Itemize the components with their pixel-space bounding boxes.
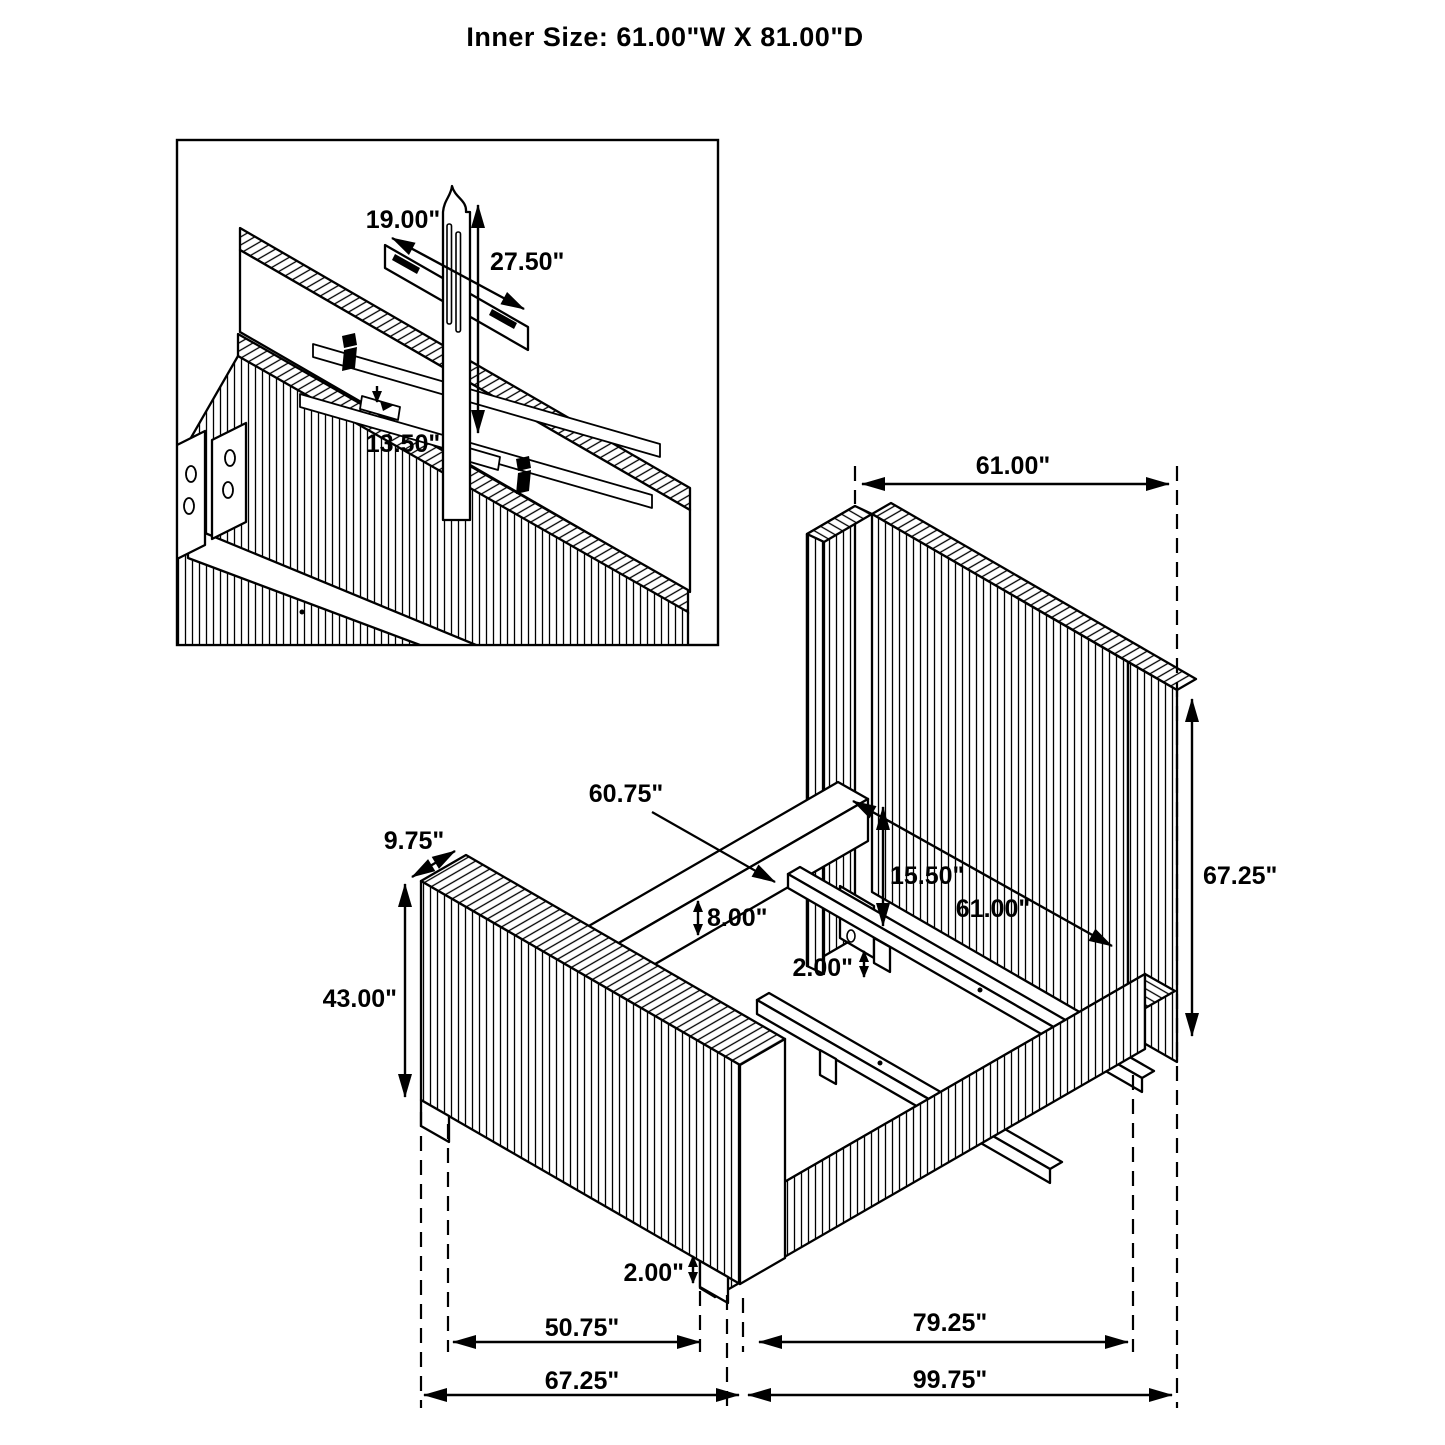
- dim-label-headboard-clearance: 15.50": [890, 862, 964, 890]
- dim-label-headboard-width: 61.00": [976, 452, 1050, 480]
- inset-tv-post: [443, 186, 470, 520]
- headboard-front-face: [872, 514, 1128, 1040]
- dimension-diagram-page: Inner Size: 61.00"W X 81.00"D: [0, 0, 1445, 1445]
- dim-label-inner-depth: 79.25": [913, 1309, 987, 1337]
- dim-label-footboard-inner-width: 50.75": [545, 1314, 619, 1342]
- dim-label-footboard-height: 43.00": [323, 985, 397, 1013]
- inset-detail-box: 19.00" 27.50" 13.50": [177, 140, 718, 645]
- dim-label-footboard-leg-height: 2.00": [623, 1259, 684, 1287]
- dim-label-footboard-outer-width: 67.25": [545, 1367, 619, 1395]
- dim-label-headboard-height: 67.25": [1203, 862, 1277, 890]
- inset-left-leg: [177, 431, 205, 559]
- inset-hinge-bracket-2: [516, 456, 531, 494]
- page-title: Inner Size: 61.00"W X 81.00"D: [0, 22, 1330, 53]
- dim-label-slat-leg-height: 2.00": [792, 954, 853, 982]
- inset-left-leg-2: [212, 423, 246, 539]
- dim-label-inner-width: 61.00": [956, 895, 1030, 923]
- dim-label-outer-depth: 99.75": [913, 1366, 987, 1394]
- inset-hinge-bracket: [342, 333, 357, 371]
- dim-label-footboard-thickness: 9.75": [384, 827, 445, 855]
- inset-dim-label-post-height: 27.50": [490, 248, 564, 276]
- footboard-end-cap: [740, 1039, 785, 1284]
- dim-label-slat-length: 60.75": [589, 780, 663, 808]
- bed-dimension-drawing: 19.00" 27.50" 13.50": [0, 0, 1445, 1445]
- inset-dim-label-bracket-offset: 13.50": [366, 430, 440, 458]
- inset-dim-label-bracket-length: 19.00": [366, 206, 440, 234]
- dim-label-rail-height: 8.00": [707, 904, 768, 932]
